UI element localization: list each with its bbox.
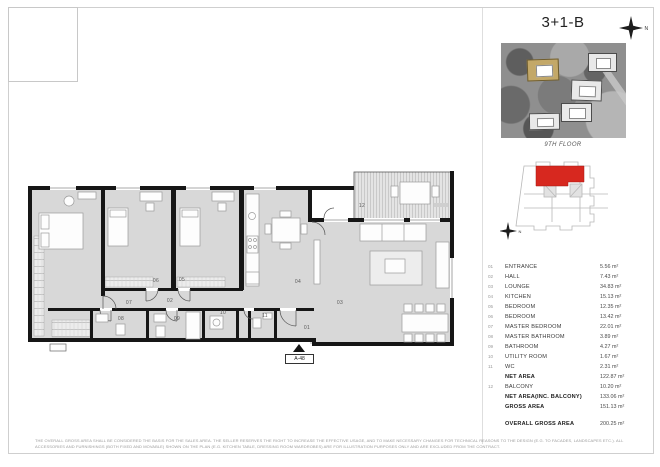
room-label-kitchen: 04 <box>295 279 301 285</box>
building <box>571 79 603 101</box>
floor-label: 9TH FLOOR <box>500 142 626 148</box>
fridge <box>246 272 259 284</box>
table-row-overall-gross-area: OVERALL GROSS AREA200.25 m² <box>488 421 642 431</box>
table-row: 12BALCONY10.20 m² <box>488 384 642 394</box>
bathtub <box>186 312 200 339</box>
sink <box>249 213 256 220</box>
table-row: 02HALL7.43 m² <box>488 274 642 284</box>
stove <box>247 236 258 253</box>
logo-placeholder-box <box>8 7 78 82</box>
table-row: 05BEDROOM12.35 m² <box>488 304 642 314</box>
coffee-table <box>385 259 405 273</box>
room-label-lounge: 03 <box>337 300 343 306</box>
room-label-balcony: 12 <box>359 203 365 209</box>
table-row: 01ENTRANCE5.56 m² <box>488 264 642 274</box>
toilet <box>253 318 261 328</box>
table-row: 09BATHROOM4.27 m² <box>488 344 642 354</box>
unit-number-label: A-48 <box>285 354 314 364</box>
building <box>588 53 617 72</box>
room-label-master-bedroom: 07 <box>126 300 132 306</box>
building <box>561 103 592 122</box>
floor-plan-drawing: 01 02 03 04 05 06 07 08 09 10 11 12 A-48 <box>12 158 482 373</box>
compass-north-icon: N <box>618 15 648 41</box>
desk <box>140 192 162 201</box>
floor-plan-svg <box>12 158 482 373</box>
table-row-net-area-inc-balcony: NET AREA(INC. BALCONY)133.06 m² <box>488 394 642 404</box>
toilet <box>156 326 165 337</box>
svg-text:N: N <box>519 229 522 234</box>
floor-key-plan: N <box>500 156 626 248</box>
disclaimer-text: THE OVERALL GROSS AREA SHALL BE CONSIDER… <box>35 438 647 450</box>
mirror <box>64 196 74 206</box>
table-row: 03LOUNGE34.83 m² <box>488 284 642 294</box>
kitchen-table <box>272 218 300 242</box>
dining-table <box>402 314 448 332</box>
table-row: 04KITCHEN15.13 m² <box>488 294 642 304</box>
toilet <box>116 324 125 335</box>
room-label-bedroom-05: 05 <box>179 277 185 283</box>
area-legend-table: 01ENTRANCE5.56 m² 02HALL7.43 m² 03LOUNGE… <box>488 264 642 431</box>
table-row: 11WC2.31 m² <box>488 364 642 374</box>
room-label-hall: 02 <box>167 298 173 304</box>
floor-plan-sheet: 3+1-B N 9TH FLOOR N <box>0 0 660 467</box>
table-row: 10UTILITY ROOM1.67 m² <box>488 354 642 364</box>
entrance-arrow <box>293 344 305 352</box>
room-label-master-bathroom: 08 <box>118 316 124 322</box>
site-aerial-photo <box>501 43 626 138</box>
tv-unit <box>314 240 320 284</box>
room-label-bedroom-06: 06 <box>153 278 159 284</box>
column-divider <box>482 8 483 444</box>
room-label-bathroom: 09 <box>174 316 180 322</box>
plan-note-box <box>50 344 66 351</box>
balcony-table <box>400 182 430 204</box>
side-sofa <box>436 242 449 288</box>
unit-type-title: 3+1-B <box>500 14 626 31</box>
railing-note <box>434 203 448 207</box>
table-row: 07MASTER BEDROOM22.01 m² <box>488 324 642 334</box>
table-row-gross-area: GROSS AREA151.13 m² <box>488 404 642 414</box>
sink <box>154 314 166 322</box>
table-row: 06BEDROOM13.42 m² <box>488 314 642 324</box>
desk <box>212 192 234 201</box>
room-label-entrance: 01 <box>304 325 310 331</box>
table-row: 08MASTER BATHROOM3.89 m² <box>488 334 642 344</box>
table-row-net-area: NET AREA122.87 m² <box>488 374 642 384</box>
room-label-utility: 10 <box>220 310 226 316</box>
room-label-wc: 11 <box>262 313 268 319</box>
highlighted-building <box>527 58 560 81</box>
sofa <box>360 224 426 241</box>
sink <box>96 314 108 322</box>
building <box>529 113 560 131</box>
svg-text:N: N <box>645 26 649 32</box>
